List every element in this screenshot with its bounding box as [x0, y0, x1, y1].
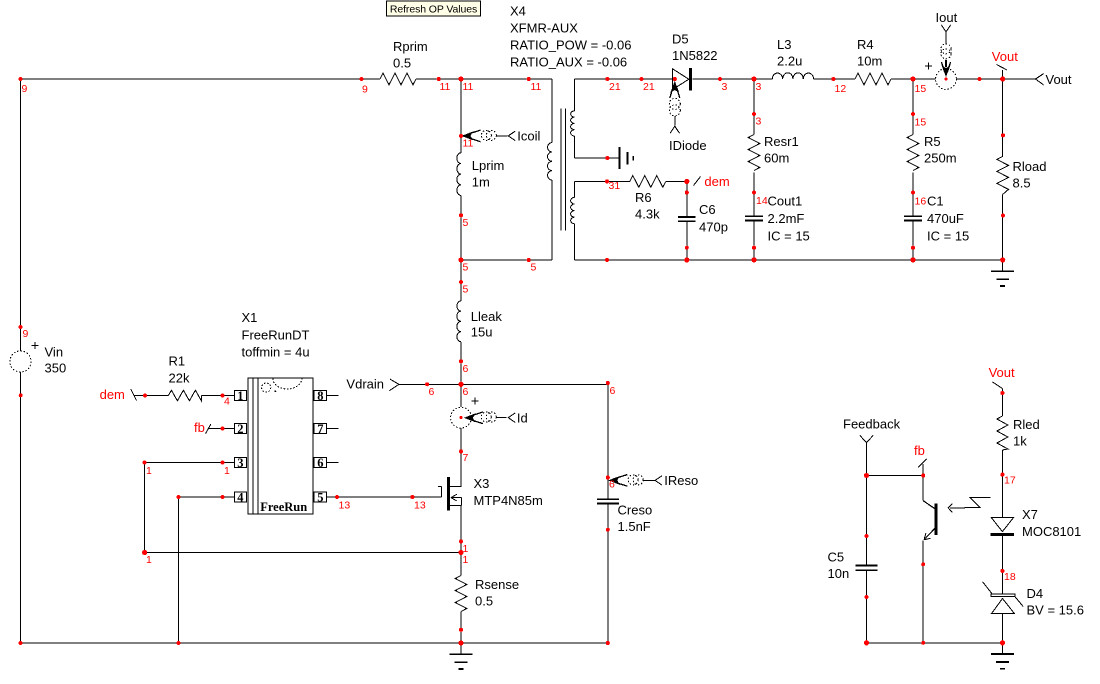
svg-text:5: 5 — [463, 284, 469, 296]
svg-text:16: 16 — [915, 195, 927, 207]
svg-text:1: 1 — [237, 389, 243, 403]
svg-text:R6: R6 — [635, 190, 652, 205]
svg-text:14: 14 — [756, 195, 768, 207]
svg-text:13: 13 — [339, 500, 351, 512]
svg-text:fb: fb — [914, 443, 925, 458]
svg-text:31: 31 — [609, 180, 621, 192]
svg-text:3: 3 — [756, 116, 762, 128]
svg-text:5: 5 — [463, 262, 469, 274]
svg-text:8.5: 8.5 — [1013, 176, 1031, 191]
svg-text:5: 5 — [463, 217, 469, 229]
svg-text:C6: C6 — [699, 202, 716, 217]
svg-text:L3: L3 — [777, 37, 791, 52]
svg-text:1: 1 — [224, 465, 230, 477]
svg-text:MTP4N85m: MTP4N85m — [474, 493, 543, 508]
svg-text:10m: 10m — [857, 54, 882, 69]
svg-text:12: 12 — [835, 83, 847, 95]
svg-text:1.5nF: 1.5nF — [618, 519, 651, 534]
svg-text:9: 9 — [22, 83, 28, 95]
svg-text:21: 21 — [609, 81, 621, 93]
svg-text:X4: X4 — [510, 4, 526, 19]
svg-text:11: 11 — [463, 138, 474, 150]
svg-text:3: 3 — [237, 456, 243, 470]
svg-text:Id: Id — [517, 411, 528, 426]
svg-text:6: 6 — [463, 363, 469, 375]
svg-text:11: 11 — [463, 81, 474, 93]
svg-text:9: 9 — [23, 328, 29, 340]
svg-text:Vdrain: Vdrain — [346, 377, 384, 392]
svg-text:Cout1: Cout1 — [768, 194, 803, 209]
svg-text:R4: R4 — [857, 37, 874, 52]
svg-text:3: 3 — [722, 81, 728, 93]
svg-text:4.3k: 4.3k — [635, 207, 660, 222]
svg-text:Resr1: Resr1 — [764, 134, 799, 149]
svg-text:C1: C1 — [927, 194, 944, 209]
svg-text:3: 3 — [756, 81, 762, 93]
svg-text:1m: 1m — [472, 175, 490, 190]
svg-text:1: 1 — [463, 554, 469, 566]
svg-text:1: 1 — [146, 465, 152, 477]
svg-text:4: 4 — [237, 491, 244, 505]
svg-text:toffmin = 4u: toffmin = 4u — [242, 345, 310, 360]
svg-text:4: 4 — [224, 396, 230, 408]
svg-text:Vout: Vout — [989, 365, 1015, 380]
svg-text:R5: R5 — [924, 134, 941, 149]
svg-text:Vout: Vout — [1046, 72, 1072, 87]
svg-text:D5: D5 — [672, 32, 689, 47]
svg-text:6: 6 — [610, 385, 616, 397]
svg-text:2: 2 — [237, 422, 243, 436]
svg-text:Rload: Rload — [1013, 159, 1047, 174]
svg-text:FreeRunDT: FreeRunDT — [242, 327, 310, 342]
svg-text:8: 8 — [317, 389, 323, 403]
svg-text:Rled: Rled — [1013, 417, 1040, 432]
svg-text:5: 5 — [317, 491, 323, 505]
svg-text:11: 11 — [531, 81, 542, 93]
svg-text:C5: C5 — [828, 550, 845, 565]
svg-text:RATIO_AUX = -0.06: RATIO_AUX = -0.06 — [510, 55, 627, 70]
svg-text:fb: fb — [194, 420, 205, 435]
svg-text:6: 6 — [609, 479, 615, 491]
svg-text:IDiode: IDiode — [669, 138, 707, 153]
svg-text:Lprim: Lprim — [472, 158, 505, 173]
svg-text:15: 15 — [915, 117, 927, 129]
svg-text:BV = 15.6: BV = 15.6 — [1027, 603, 1084, 618]
svg-text:X7: X7 — [1022, 507, 1038, 522]
svg-text:350: 350 — [45, 361, 67, 376]
svg-text:1k: 1k — [1013, 434, 1027, 449]
svg-text:IC = 15: IC = 15 — [927, 229, 969, 244]
svg-text:Rprim: Rprim — [393, 39, 428, 54]
svg-text:1N5822: 1N5822 — [672, 48, 718, 63]
svg-text:X3: X3 — [474, 476, 490, 491]
svg-text:2.2mF: 2.2mF — [768, 211, 805, 226]
svg-text:10n: 10n — [828, 566, 850, 581]
svg-text:9: 9 — [362, 84, 368, 96]
svg-text:1: 1 — [146, 554, 152, 566]
svg-text:D4: D4 — [1027, 586, 1044, 601]
svg-text:Rsense: Rsense — [475, 577, 519, 592]
svg-text:2.2u: 2.2u — [777, 54, 802, 69]
svg-text:18: 18 — [1004, 571, 1016, 583]
svg-text:FreeRun: FreeRun — [260, 500, 307, 514]
svg-text:6: 6 — [317, 456, 323, 470]
svg-text:250m: 250m — [924, 151, 957, 166]
svg-text:Iout: Iout — [936, 10, 958, 25]
svg-text:22k: 22k — [169, 371, 190, 386]
svg-text:X1: X1 — [242, 310, 258, 325]
svg-text:470uF: 470uF — [927, 211, 964, 226]
svg-text:7: 7 — [463, 452, 469, 464]
svg-text:0.5: 0.5 — [475, 594, 493, 609]
svg-text:Refresh OP Values: Refresh OP Values — [390, 4, 477, 16]
svg-text:6: 6 — [429, 386, 435, 398]
svg-text:dem: dem — [704, 174, 729, 189]
svg-text:60m: 60m — [764, 151, 789, 166]
svg-text:5: 5 — [531, 262, 537, 274]
svg-text:RATIO_POW = -0.06: RATIO_POW = -0.06 — [510, 38, 632, 53]
svg-text:11: 11 — [440, 81, 451, 93]
svg-text:Vout: Vout — [992, 49, 1018, 64]
svg-text:6: 6 — [463, 386, 469, 398]
svg-text:Creso: Creso — [618, 503, 653, 518]
svg-text:0.5: 0.5 — [393, 56, 411, 71]
svg-text:dem: dem — [100, 387, 125, 402]
svg-text:Lleak: Lleak — [471, 309, 503, 324]
svg-text:15: 15 — [915, 83, 927, 95]
svg-text:13: 13 — [414, 500, 426, 512]
svg-text:IReso: IReso — [664, 473, 698, 488]
svg-text:MOC8101: MOC8101 — [1022, 524, 1081, 539]
svg-text:15u: 15u — [471, 325, 493, 340]
svg-text:21: 21 — [643, 81, 655, 93]
svg-text:7: 7 — [317, 422, 323, 436]
svg-text:Feedback: Feedback — [843, 417, 901, 432]
svg-text:17: 17 — [1004, 474, 1016, 486]
svg-text:R1: R1 — [169, 354, 186, 369]
svg-text:XFMR-AUX: XFMR-AUX — [510, 21, 578, 36]
svg-text:Vin: Vin — [45, 345, 64, 360]
svg-text:470p: 470p — [699, 220, 728, 235]
svg-text:Icoil: Icoil — [517, 128, 540, 143]
svg-text:IC = 15: IC = 15 — [768, 229, 810, 244]
